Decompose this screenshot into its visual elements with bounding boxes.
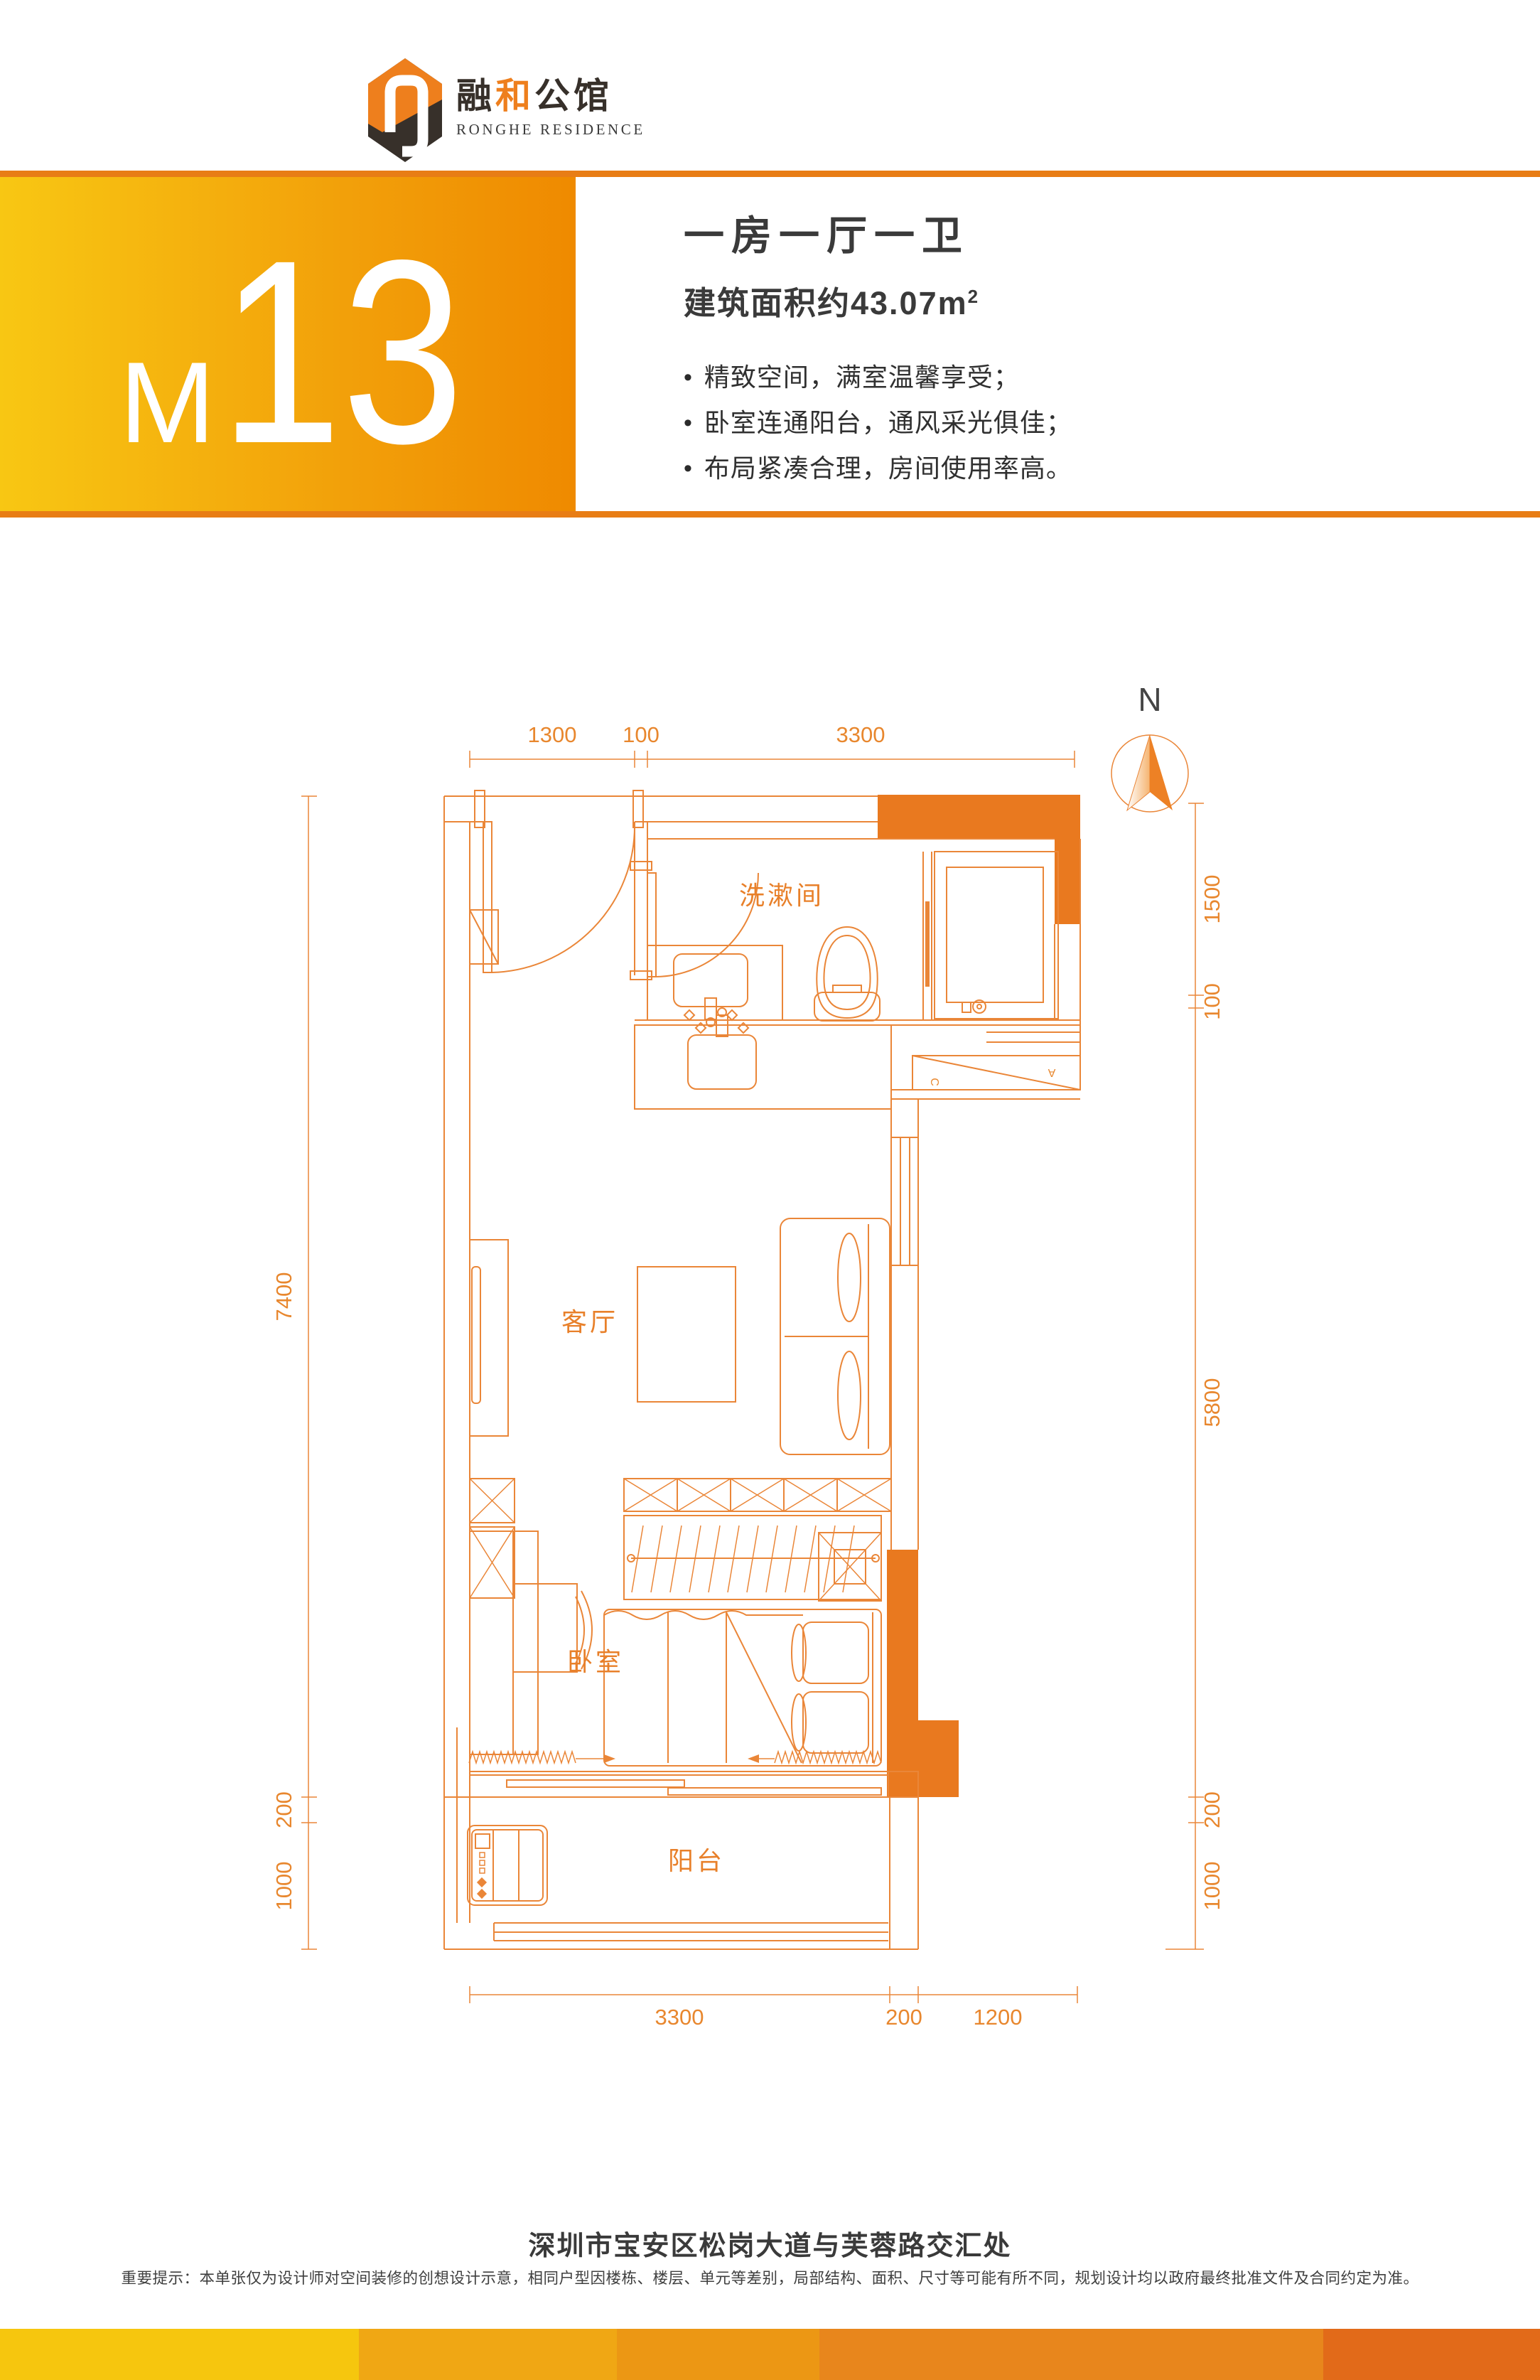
dim-left-1000: 1000 [271, 1862, 296, 1911]
project-address: 深圳市宝安区松岗大道与芙蓉路交汇处 [0, 2224, 1540, 2263]
room-label-bedroom: 卧室 [567, 1647, 624, 1676]
dim-right-5800: 5800 [1200, 1378, 1224, 1427]
dim-bottom-200: 200 [885, 2005, 922, 2030]
wardrobe-cabinets [470, 1479, 891, 1598]
toilet-icon [814, 927, 880, 1021]
unit-title: 一房一厅一卫 [684, 213, 1072, 260]
dim-chain-bottom: 3300 200 1200 [470, 1986, 1077, 2030]
unit-title-block: 一房一厅一卫 建筑面积约43.07m2 精致空间，满室温馨享受； 卧室连通阳台，… [684, 213, 1072, 501]
bottom-color-stripe [0, 2329, 1540, 2380]
stripe-segment [617, 2329, 819, 2380]
coffee-table [637, 1267, 736, 1402]
ac-platform: A C [912, 1056, 1080, 1090]
dim-top-100: 100 [623, 722, 659, 747]
balcony-railing [494, 1923, 888, 1941]
unit-code: M 13 [119, 221, 510, 483]
compass: N [1111, 681, 1188, 812]
unit-area-text: 建筑面积约43.07m [684, 285, 968, 321]
brand-name-dark2: 公馆 [534, 76, 613, 116]
unit-area: 建筑面积约43.07m2 [684, 277, 1072, 323]
dim-top-1300: 1300 [528, 722, 577, 747]
bed [604, 1609, 881, 1766]
flyer-page: 融和公馆 RONGHE RESIDENCE M 13 一房一厅一卫 建筑面积约4… [0, 0, 1540, 2380]
wash-counter [635, 1008, 891, 1109]
floor-plan: A C [270, 661, 1308, 2054]
ac-letter-a: A [1048, 1066, 1055, 1078]
brand-name-orange: 和 [495, 76, 534, 116]
sliding-door-panels [507, 1780, 881, 1795]
dim-top-3300: 3300 [836, 722, 885, 747]
tv-cabinet [470, 1240, 508, 1436]
unit-band: M 13 一房一厅一卫 建筑面积约43.07m2 精致空间，满室温馨享受； 卧室… [0, 171, 1540, 518]
room-label-balcony: 阳台 [668, 1846, 725, 1875]
band-rule-top [0, 171, 1540, 177]
stripe-segment [1323, 2329, 1540, 2380]
wardrobe-hanging-rail [624, 1516, 881, 1599]
legal-disclaimer: 重要提示：本单张仅为设计师对空间装修的创想设计示意，相同户型因楼栋、楼层、单元等… [0, 2266, 1540, 2288]
entry-door [483, 822, 635, 972]
ac-letter-c: C [928, 1078, 940, 1086]
brand-text: 融和公馆 RONGHE RESIDENCE [456, 58, 645, 139]
room-label-bathroom: 洗漱间 [739, 881, 824, 910]
wall-fill-blocks [878, 795, 1080, 1797]
shower-area [923, 852, 1058, 1020]
compass-north-label: N [1138, 681, 1161, 718]
brand-subtitle: RONGHE RESIDENCE [456, 121, 645, 139]
brand-name: 融和公馆 [456, 78, 645, 114]
dim-left-200: 200 [271, 1791, 296, 1828]
sofa [780, 1218, 890, 1454]
brand-header: 融和公馆 RONGHE RESIDENCE [368, 58, 645, 162]
dim-right-1500: 1500 [1200, 875, 1224, 924]
stripe-segment [359, 2329, 617, 2380]
dim-right-100: 100 [1200, 983, 1224, 1020]
stripe-segment [819, 2329, 1323, 2380]
feature-bullet: 卧室连通阳台，通风采光俱佳； [684, 410, 1072, 436]
unit-gradient-block: M 13 [0, 177, 576, 511]
unit-area-sup: 2 [968, 286, 979, 307]
dim-left-7400: 7400 [271, 1272, 296, 1322]
dim-chain-top: 1300 100 3300 [470, 722, 1075, 768]
stripe-segment [0, 2329, 359, 2380]
feature-bullet: 布局紧凑合理，房间使用率高。 [684, 456, 1072, 481]
dim-chain-left: 7400 200 1000 [271, 796, 317, 1949]
bedroom-desk [470, 1531, 592, 1754]
walls [444, 790, 1080, 1949]
dim-bottom-1200: 1200 [974, 2005, 1023, 2030]
brand-logo-icon [368, 58, 442, 162]
room-label-living: 客厅 [561, 1307, 618, 1336]
dim-right-200: 200 [1200, 1791, 1224, 1828]
dim-right-1000: 1000 [1200, 1862, 1224, 1911]
unit-letter: M [119, 345, 215, 461]
band-rule-bottom [0, 511, 1540, 518]
washing-machine [468, 1826, 547, 1905]
feature-list: 精致空间，满室温馨享受； 卧室连通阳台，通风采光俱佳； 布局紧凑合理，房间使用率… [684, 365, 1072, 481]
brand-name-dark1: 融 [456, 76, 495, 116]
dim-chain-right: 1500 100 5800 200 1000 [1165, 803, 1224, 1949]
unit-number: 13 [220, 221, 464, 483]
dim-bottom-3300: 3300 [655, 2005, 704, 2030]
feature-bullet: 精致空间，满室温馨享受； [684, 365, 1072, 390]
